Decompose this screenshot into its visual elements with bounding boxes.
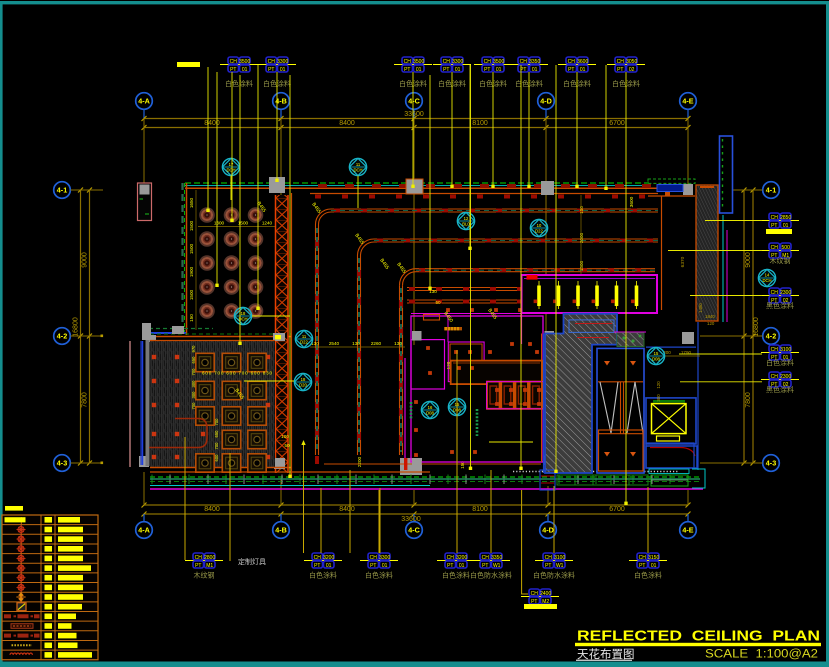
svg-text:1480: 1480 (698, 303, 703, 313)
svg-text:17: 17 (229, 162, 234, 167)
svg-text:3500: 3500 (239, 59, 250, 65)
svg-text:4-E: 4-E (682, 97, 693, 106)
svg-text:3350: 3350 (491, 555, 502, 561)
svg-text:14: 14 (765, 273, 770, 278)
svg-text:白色涂料: 白色涂料 (365, 571, 393, 580)
svg-text:1500: 1500 (579, 260, 584, 271)
svg-text:3500: 3500 (413, 59, 424, 65)
svg-text:W1: W1 (556, 563, 564, 569)
svg-text:120: 120 (707, 321, 715, 326)
svg-text:4-C: 4-C (408, 97, 420, 106)
svg-text:DCH: DCH (762, 278, 771, 283)
svg-text:3300: 3300 (379, 555, 390, 561)
svg-text:01: 01 (580, 67, 586, 73)
svg-text:700: 700 (191, 368, 196, 376)
svg-text:2000: 2000 (579, 232, 584, 243)
svg-text:4-A: 4-A (138, 526, 150, 535)
svg-text:2800: 2800 (204, 555, 215, 561)
svg-text:4-3: 4-3 (57, 459, 67, 468)
svg-text:01: 01 (416, 67, 422, 73)
svg-text:3100: 3100 (780, 347, 791, 353)
svg-text:3300: 3300 (452, 59, 463, 65)
svg-text:16800: 16800 (73, 317, 80, 337)
svg-text:CH: CH (568, 59, 576, 65)
svg-text:D08: D08 (652, 357, 660, 362)
svg-text:33600: 33600 (401, 516, 421, 523)
svg-text:33600: 33600 (404, 111, 424, 118)
svg-text:8400: 8400 (204, 506, 220, 513)
svg-text:3150: 3150 (648, 555, 659, 561)
svg-text:CH: CH (314, 555, 322, 561)
svg-text:1500: 1500 (189, 243, 194, 254)
svg-text:02: 02 (629, 67, 635, 73)
svg-text:18: 18 (241, 311, 246, 316)
svg-text:4-2: 4-2 (57, 332, 67, 341)
svg-text:PT: PT (370, 563, 376, 569)
svg-text:700: 700 (214, 442, 219, 450)
svg-text:CH: CH (404, 59, 412, 65)
svg-text:D08: D08 (426, 411, 434, 416)
svg-text:PT: PT (771, 223, 777, 229)
svg-text:150: 150 (189, 314, 194, 322)
svg-text:2400: 2400 (540, 591, 551, 597)
svg-text:9000: 9000 (82, 252, 89, 268)
svg-text:3200: 3200 (456, 555, 467, 561)
svg-text:CH: CH (447, 555, 455, 561)
svg-text:M2: M2 (542, 599, 549, 605)
svg-text:木纹钢: 木纹钢 (770, 256, 791, 265)
svg-text:定制灯具: 定制灯具 (238, 557, 266, 566)
svg-text:黑色涂料: 黑色涂料 (766, 301, 794, 310)
svg-text:CH: CH (639, 555, 647, 561)
svg-text:6370: 6370 (680, 256, 686, 267)
svg-text:8100: 8100 (472, 506, 488, 513)
svg-text:3100: 3100 (554, 555, 565, 561)
svg-text:600: 600 (214, 454, 219, 462)
svg-text:BL0: BL0 (462, 222, 470, 227)
svg-text:600 700 600 700 600 830: 600 700 600 700 600 830 (202, 371, 272, 376)
svg-text:白色涂料: 白色涂料 (442, 571, 470, 580)
svg-text:8400: 8400 (339, 506, 355, 513)
svg-text:15: 15 (654, 351, 659, 356)
svg-text:PT: PT (545, 563, 551, 569)
svg-text:PT: PT (568, 67, 574, 73)
svg-text:9000: 9000 (745, 252, 752, 268)
svg-text:3600: 3600 (629, 196, 635, 207)
svg-text:CH: CH (771, 347, 779, 353)
svg-text:CH: CH (370, 555, 378, 561)
svg-text:130: 130 (394, 341, 402, 346)
svg-text:4-3: 4-3 (766, 459, 776, 468)
svg-text:01: 01 (496, 67, 502, 73)
svg-text:8100: 8100 (472, 120, 488, 127)
svg-text:PT: PT (443, 67, 449, 73)
svg-text:01: 01 (326, 563, 332, 569)
svg-text:01: 01 (459, 563, 465, 569)
svg-text:CH: CH (771, 215, 779, 221)
svg-text:120: 120 (656, 381, 661, 389)
svg-text:CH: CH (484, 59, 492, 65)
svg-text:700: 700 (191, 402, 196, 410)
svg-text:4-B: 4-B (275, 526, 287, 535)
svg-text:1650: 1650 (189, 197, 194, 208)
svg-text:CH: CH (482, 555, 490, 561)
svg-text:130: 130 (352, 341, 360, 346)
svg-text:7800: 7800 (82, 392, 89, 408)
svg-text:500: 500 (782, 245, 791, 251)
svg-text:18: 18 (301, 377, 306, 382)
svg-text:10: 10 (537, 223, 542, 228)
svg-text:W1: W1 (493, 563, 501, 569)
svg-text:CH: CH (531, 591, 539, 597)
svg-text:1840: 1840 (705, 314, 715, 319)
svg-text:11: 11 (356, 162, 361, 167)
svg-text:1500: 1500 (189, 289, 194, 300)
svg-text:CH: CH (545, 555, 553, 561)
svg-text:4-E: 4-E (682, 526, 693, 535)
svg-text:2850: 2850 (780, 215, 791, 221)
svg-text:300: 300 (191, 391, 196, 399)
svg-text:2260: 2260 (371, 341, 382, 346)
svg-text:CH: CH (443, 59, 451, 65)
svg-text:PT: PT (531, 599, 537, 605)
svg-text:木纹钢: 木纹钢 (194, 571, 215, 580)
svg-text:4-A: 4-A (138, 97, 150, 106)
svg-text:3500: 3500 (493, 59, 504, 65)
svg-text:2300: 2300 (780, 290, 791, 296)
svg-text:3350: 3350 (529, 59, 540, 65)
svg-text:D20: D20 (299, 383, 307, 388)
svg-text:1300: 1300 (214, 221, 225, 226)
svg-text:11: 11 (302, 334, 307, 339)
svg-text:3200: 3200 (323, 555, 334, 561)
svg-text:PT: PT (404, 67, 410, 73)
svg-text:120: 120 (446, 361, 451, 369)
svg-text:REFLECTED CEILING PLAN: REFLECTED CEILING PLAN (577, 629, 820, 645)
svg-text:01: 01 (455, 67, 461, 73)
svg-text:2300: 2300 (780, 374, 791, 380)
svg-text:PT: PT (484, 67, 490, 73)
svg-text:PT: PT (447, 563, 453, 569)
svg-text:天花布置图: 天花布置图 (577, 648, 635, 661)
svg-text:700: 700 (214, 418, 219, 426)
svg-text:6700: 6700 (609, 506, 625, 513)
svg-text:12: 12 (464, 216, 469, 221)
svg-text:4-1: 4-1 (57, 186, 67, 195)
svg-text:CH: CH (230, 59, 238, 65)
svg-text:PT: PT (230, 67, 236, 73)
svg-text:100: 100 (281, 434, 289, 439)
svg-text:16: 16 (428, 405, 433, 410)
svg-text:白色涂料: 白色涂料 (766, 358, 794, 367)
svg-text:PT: PT (617, 67, 623, 73)
svg-text:CH: CH (617, 59, 625, 65)
svg-text:4-C: 4-C (408, 526, 420, 535)
svg-text:PT: PT (482, 563, 488, 569)
svg-text:D22: D22 (300, 340, 308, 345)
svg-text:CH: CH (195, 555, 203, 561)
svg-text:01: 01 (382, 563, 388, 569)
svg-text:970: 970 (191, 345, 196, 353)
svg-text:4-D: 4-D (540, 97, 552, 106)
svg-text:PT: PT (195, 563, 201, 569)
svg-text:650: 650 (214, 430, 219, 438)
svg-text:01: 01 (651, 563, 657, 569)
svg-text:白色涂料: 白色涂料 (225, 79, 253, 88)
svg-text:白色涂料: 白色涂料 (309, 571, 337, 580)
svg-text:8400: 8400 (204, 120, 220, 127)
svg-text:D22: D22 (535, 229, 543, 234)
svg-text:白色防水涂料: 白色防水涂料 (533, 571, 575, 580)
svg-text:3600: 3600 (577, 59, 588, 65)
svg-text:4-2: 4-2 (766, 332, 776, 341)
svg-text:PT: PT (639, 563, 645, 569)
svg-text:01: 01 (242, 67, 248, 73)
svg-text:3050: 3050 (626, 59, 637, 65)
svg-text:4-1: 4-1 (766, 186, 776, 195)
svg-text:300: 300 (191, 380, 196, 388)
svg-text:M1: M1 (206, 563, 213, 569)
svg-text:PT: PT (268, 67, 274, 73)
svg-text:SCALE 1:100@A2: SCALE 1:100@A2 (705, 649, 818, 661)
svg-text:2540: 2540 (329, 341, 340, 346)
svg-text:CH: CH (771, 245, 779, 251)
svg-text:50: 50 (284, 443, 290, 448)
svg-text:50: 50 (435, 300, 441, 305)
svg-text:01: 01 (280, 67, 286, 73)
svg-text:CH: CH (771, 290, 779, 296)
svg-text:650: 650 (191, 356, 196, 364)
svg-text:01: 01 (532, 67, 538, 73)
svg-text:1500: 1500 (238, 221, 249, 226)
svg-text:1500: 1500 (189, 220, 194, 231)
svg-text:300: 300 (656, 394, 661, 402)
svg-text:8400: 8400 (339, 120, 355, 127)
svg-text:16800: 16800 (753, 317, 760, 337)
svg-text:7800: 7800 (745, 392, 752, 408)
svg-text:白色涂料: 白色涂料 (634, 571, 662, 580)
svg-text:1900: 1900 (189, 266, 194, 277)
svg-text:1240: 1240 (262, 221, 273, 226)
svg-text:DCH: DCH (226, 168, 235, 173)
svg-text:6700: 6700 (609, 120, 625, 127)
svg-text:CH: CH (520, 59, 528, 65)
svg-text:2200: 2200 (357, 456, 362, 467)
svg-text:白色防水涂料: 白色防水涂料 (470, 571, 512, 580)
svg-text:CH: CH (771, 374, 779, 380)
svg-text:4-D: 4-D (542, 526, 554, 535)
svg-text:DCH: DCH (353, 168, 362, 173)
svg-text:3300: 3300 (277, 59, 288, 65)
svg-text:150: 150 (579, 206, 584, 214)
svg-text:黑色涂料: 黑色涂料 (766, 385, 794, 394)
svg-text:CH: CH (268, 59, 276, 65)
svg-text:PT: PT (314, 563, 320, 569)
svg-text:01: 01 (783, 223, 789, 229)
